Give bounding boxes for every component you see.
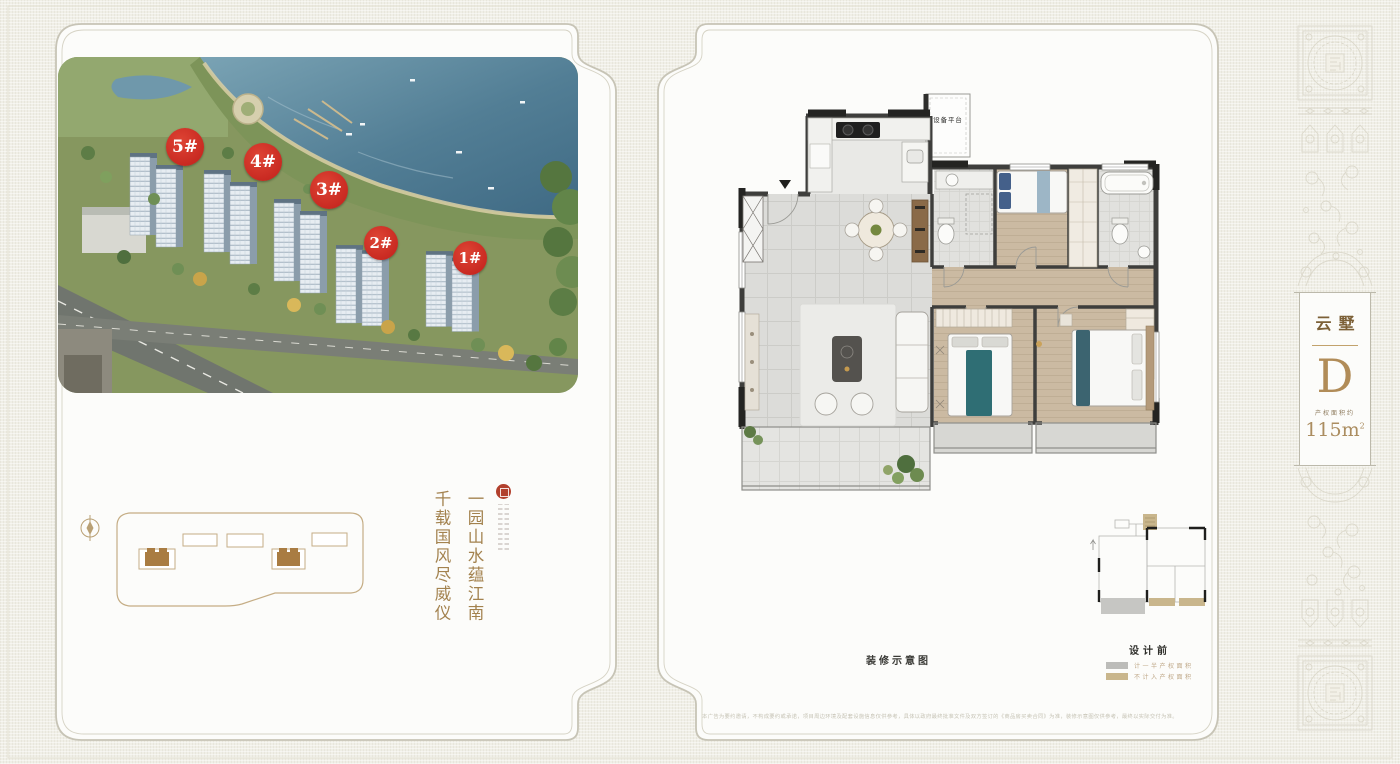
area-prefix: 产权面积约 bbox=[1300, 408, 1370, 417]
keyplan-title: 设计前 bbox=[1129, 642, 1171, 657]
area-legend: 计一半产权面积 不计入产权面积 bbox=[1106, 660, 1194, 682]
unit-card: 云墅 D 产权面积约 115m2 bbox=[1299, 292, 1371, 466]
area-value: 115m2 bbox=[1300, 419, 1370, 441]
building-badge-3: 3# bbox=[310, 171, 348, 209]
legend-label: 不计入产权面积 bbox=[1134, 672, 1194, 681]
aerial-photo: 5# 4# 3# 2# 1# bbox=[58, 57, 578, 393]
ornament-top bbox=[1294, 20, 1376, 292]
ornament-bottom bbox=[1294, 460, 1376, 742]
disclaimer-text: 本广告为要约邀请，不构成要约或承诺，项目周边环境及配套设施信息仅供参考，具体以政… bbox=[690, 712, 1190, 720]
poem-block: 一园山水蕴江南 千载国风尽威仪 bbox=[424, 476, 514, 652]
brochure-page: 5# 4# 3# 2# 1# 一园山水蕴江南 千载国风尽威仪 bbox=[0, 0, 1400, 764]
building-badge-2: 2# bbox=[364, 226, 398, 260]
floor-plan: 设备平台 bbox=[720, 82, 1170, 502]
aerial-scene bbox=[58, 57, 578, 393]
legend-row-half-area: 计一半产权面积 bbox=[1106, 660, 1194, 671]
poem-line-1: 一园山水蕴江南 bbox=[462, 490, 486, 623]
floorplan-caption: 装修示意图 bbox=[866, 652, 931, 667]
key-plan bbox=[1085, 506, 1217, 624]
equipment-platform-label: 设备平台 bbox=[933, 115, 963, 124]
building-badge-4: 4# bbox=[244, 143, 282, 181]
legend-swatch-tan bbox=[1106, 673, 1128, 680]
seal-caption bbox=[498, 504, 509, 550]
poem-line-2: 千载国风尽威仪 bbox=[429, 490, 453, 623]
legend-row-excluded-area: 不计入产权面积 bbox=[1106, 671, 1194, 682]
building-badge-5: 5# bbox=[166, 128, 204, 166]
legend-label: 计一半产权面积 bbox=[1134, 661, 1194, 670]
series-name: 云墅 bbox=[1300, 310, 1370, 334]
compass-icon bbox=[81, 515, 99, 541]
seal-icon bbox=[496, 484, 511, 499]
entry-marker-icon bbox=[779, 180, 791, 189]
unit-letter: D bbox=[1300, 350, 1370, 402]
building-badge-1: 1# bbox=[453, 241, 487, 275]
site-plan bbox=[70, 500, 380, 620]
legend-swatch-gray bbox=[1106, 662, 1128, 669]
divider bbox=[1312, 345, 1358, 346]
